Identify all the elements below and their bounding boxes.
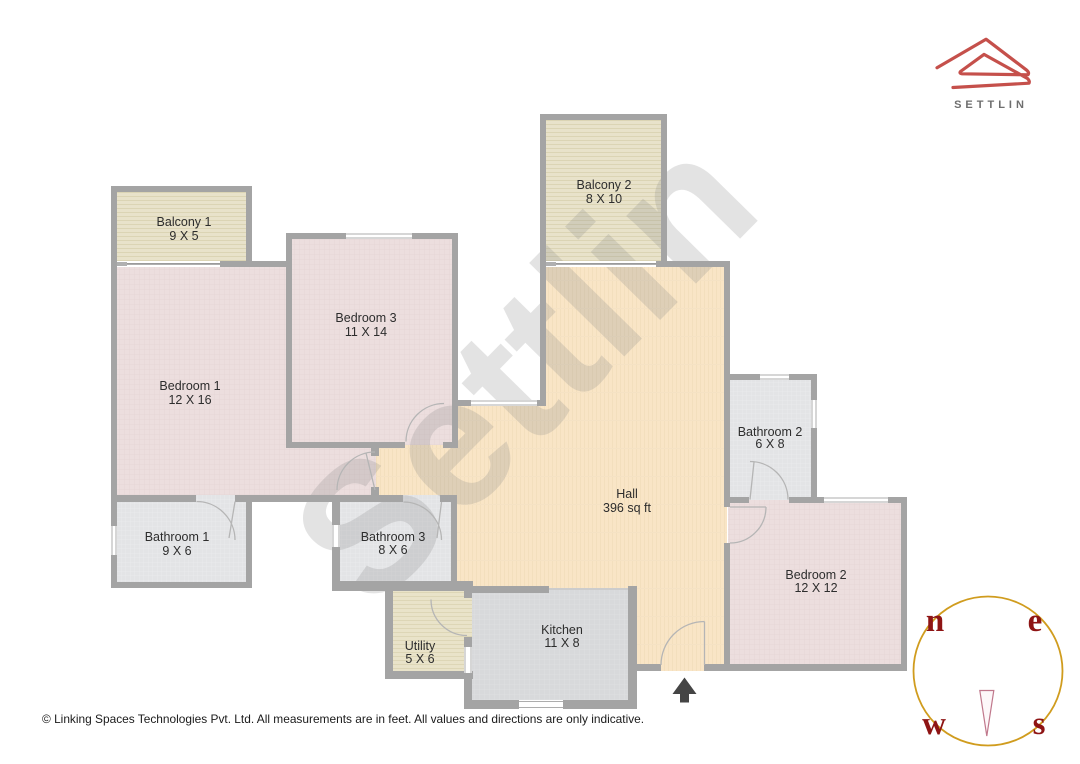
svg-text:8 X 10: 8 X 10 [586, 192, 622, 206]
svg-text:12 X 12: 12 X 12 [794, 581, 837, 595]
svg-text:n: n [926, 603, 944, 639]
svg-text:11 X 14: 11 X 14 [345, 325, 387, 339]
svg-text:Balcony 1: Balcony 1 [157, 215, 212, 229]
svg-text:Utility: Utility [405, 639, 436, 653]
svg-text:9 X 5: 9 X 5 [169, 229, 198, 243]
svg-text:5 X 6: 5 X 6 [405, 652, 434, 666]
svg-text:Hall: Hall [616, 487, 638, 501]
svg-text:9 X 6: 9 X 6 [162, 544, 191, 558]
svg-text:8 X 6: 8 X 6 [378, 543, 407, 557]
svg-text:w: w [922, 706, 946, 742]
svg-text:396 sq ft: 396 sq ft [603, 501, 651, 515]
svg-text:Bedroom 1: Bedroom 1 [159, 379, 220, 393]
svg-text:Balcony 2: Balcony 2 [577, 178, 632, 192]
svg-text:Bedroom 3: Bedroom 3 [335, 311, 396, 325]
svg-text:Kitchen: Kitchen [541, 623, 583, 637]
svg-text:12 X 16: 12 X 16 [168, 393, 211, 407]
svg-text:Bedroom 2: Bedroom 2 [785, 568, 846, 582]
svg-text:e: e [1028, 603, 1043, 639]
svg-text:s: s [1033, 706, 1046, 742]
svg-text:6 X 8: 6 X 8 [755, 437, 784, 451]
svg-text:11 X 8: 11 X 8 [544, 636, 579, 650]
svg-text:SETTLIN: SETTLIN [954, 99, 1028, 111]
svg-text:Bathroom 3: Bathroom 3 [361, 530, 426, 544]
svg-text:© Linking Spaces Technologies: © Linking Spaces Technologies Pvt. Ltd. … [42, 712, 644, 726]
svg-text:Bathroom 1: Bathroom 1 [145, 530, 210, 544]
